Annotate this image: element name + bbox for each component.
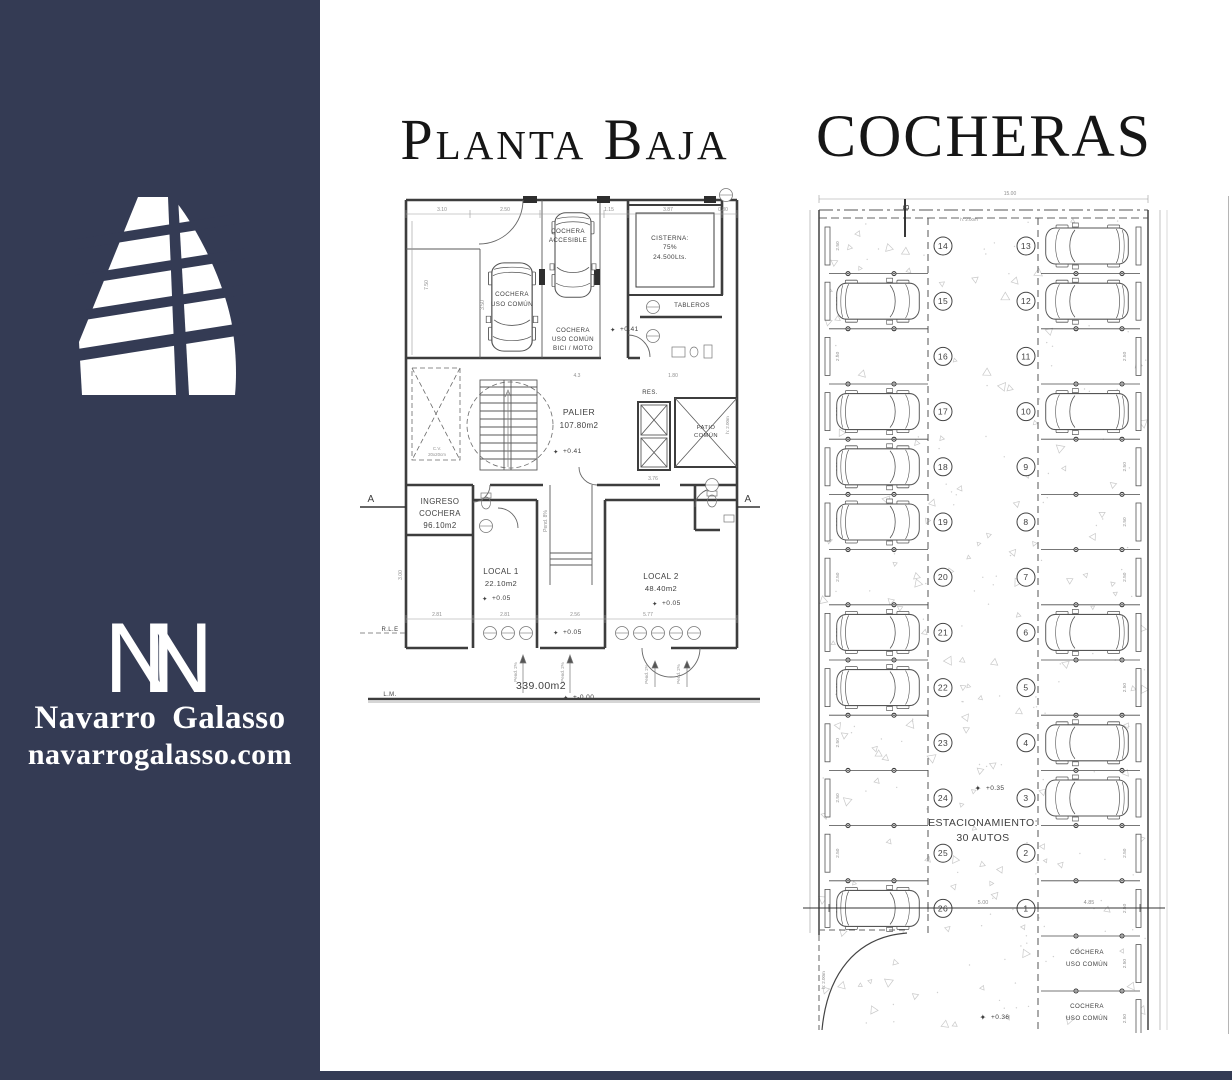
co-label: 2.50 bbox=[1122, 351, 1128, 361]
title-cocheras: COCHERAS bbox=[788, 102, 1180, 171]
co-label: 2.50 bbox=[835, 572, 841, 582]
parking-spot-number: 8 bbox=[1023, 517, 1028, 527]
car-top-view-icon bbox=[1046, 278, 1129, 324]
dim: 3.76 bbox=[648, 476, 658, 482]
pb-cisterna-walls bbox=[628, 205, 737, 470]
title-planta-baja: Planta Baja bbox=[358, 106, 772, 173]
co-label: USO COMÚN bbox=[1066, 961, 1108, 968]
level-041: +0.41 bbox=[563, 448, 582, 455]
planta-baja-plan: COCHERA ACCESIBLE COCHERA USO COMÚN CIST… bbox=[360, 185, 760, 760]
co-label: h: 2.00m bbox=[821, 971, 826, 989]
cocheras-plan: 15.00Bh: 2.00m2.502.502.502.502.502.502.… bbox=[795, 185, 1175, 1033]
co-label: +0.35 bbox=[986, 785, 1004, 792]
label-cochera-bici: BICI / MOTO bbox=[553, 345, 593, 352]
label-cisterna: 24.500Lts. bbox=[653, 254, 687, 261]
co-label: 2.50 bbox=[1122, 959, 1128, 969]
label-local-2: LOCAL 2 bbox=[643, 572, 679, 581]
label-pend-8: Pend. 8% bbox=[543, 510, 549, 532]
car-top-view-icon bbox=[837, 444, 920, 490]
level-mark-icon: ✦ bbox=[482, 595, 488, 603]
co-label: COCHERA bbox=[1070, 949, 1104, 956]
level-mark-icon: ✦ bbox=[553, 448, 559, 456]
dim: 4.3 bbox=[574, 373, 581, 379]
co-label: 2.50 bbox=[835, 738, 841, 748]
parking-spot-number: 15 bbox=[938, 296, 948, 306]
parking-spot-number: 23 bbox=[938, 738, 948, 748]
co-label: 2.50 bbox=[1122, 683, 1128, 693]
label-lm: L.M. bbox=[383, 692, 396, 698]
parking-spot-number: 5 bbox=[1023, 683, 1028, 693]
label-pend-2: Pend. 2% bbox=[513, 662, 518, 682]
dim: 2.56 bbox=[570, 612, 580, 618]
level-005: +0.05 bbox=[492, 595, 511, 602]
parking-spot-number: 16 bbox=[938, 351, 948, 361]
co-label: 2.50 bbox=[835, 241, 841, 251]
label-cv: C.V. bbox=[433, 446, 441, 451]
dim: 3.87 bbox=[663, 207, 673, 213]
dim: 1.80 bbox=[668, 373, 678, 379]
parking-spot-number: 22 bbox=[938, 683, 948, 693]
label-local-2-area: 48.40m2 bbox=[645, 584, 677, 593]
parking-spot-number: 12 bbox=[1021, 296, 1031, 306]
label-local-1: LOCAL 1 bbox=[483, 567, 519, 576]
level-000: +-0.00 bbox=[573, 694, 594, 701]
flyer-page: N N Navarro Galasso navarrogalasso.com P… bbox=[0, 0, 1232, 1080]
right-edge-dim-line bbox=[1228, 196, 1229, 1034]
car-top-view-icon bbox=[550, 213, 596, 297]
co-label: +0.36 bbox=[991, 1014, 1009, 1021]
car-top-view-icon bbox=[837, 665, 920, 711]
label-pend-2: Pend. 2% bbox=[676, 664, 681, 684]
car-top-view-icon bbox=[1046, 389, 1129, 435]
dim: 0.80 bbox=[718, 207, 728, 213]
level-041: +0.41 bbox=[620, 326, 639, 333]
label-ingreso-area: 96.10m2 bbox=[423, 521, 456, 530]
parking-spot-number: 9 bbox=[1023, 462, 1028, 472]
label-ingreso: INGRESO bbox=[421, 497, 460, 506]
parking-spot-number: 21 bbox=[938, 627, 948, 637]
co-label: 2.50 bbox=[835, 351, 841, 361]
car-top-view-icon bbox=[837, 609, 920, 655]
label-cochera-uso-comun: COCHERA bbox=[495, 291, 529, 298]
brand-website: navarrogalasso.com bbox=[0, 738, 320, 772]
parking-spot-number: 6 bbox=[1023, 627, 1028, 637]
label-h200: h: 2.00m bbox=[725, 416, 730, 434]
co-label: 4.85 bbox=[1084, 900, 1095, 906]
co-label: 2.50 bbox=[1122, 462, 1128, 472]
label-res: RES. bbox=[642, 390, 658, 396]
co-label: B bbox=[902, 204, 911, 210]
co-label: 15.00 bbox=[1004, 191, 1017, 197]
parking-spot-number: 11 bbox=[1021, 351, 1031, 361]
level-005: +0.05 bbox=[662, 600, 681, 607]
label-palier: PALIER bbox=[563, 407, 595, 417]
car-top-view-icon bbox=[1046, 720, 1129, 766]
dim: 2.50 bbox=[500, 207, 510, 213]
section-marker-a-right: A bbox=[744, 494, 751, 505]
dim: 3.10 bbox=[437, 207, 447, 213]
co-label: ✦ bbox=[974, 784, 981, 793]
co-label: COCHERA bbox=[1070, 1003, 1104, 1010]
label-palier-area: 107.80m2 bbox=[560, 421, 599, 430]
parking-spot-number: 17 bbox=[938, 407, 948, 417]
co-label: ESTACIONAMIENTO: bbox=[928, 817, 1038, 829]
co-label: 2.50 bbox=[1122, 848, 1128, 858]
parking-spot-number: 2 bbox=[1023, 848, 1028, 858]
co-label: 30 AUTOS bbox=[956, 832, 1009, 844]
dim: 5.77 bbox=[643, 612, 653, 618]
label-area-total: 339.00m2 bbox=[516, 680, 566, 692]
parking-spot-number: 3 bbox=[1023, 793, 1028, 803]
label-cochera-accesible: COCHERA bbox=[551, 228, 585, 235]
label-pend-2: Pend. 2% bbox=[560, 662, 565, 682]
monogram-n2: N bbox=[142, 602, 214, 700]
label-rle: R.L.E bbox=[381, 627, 398, 633]
label-cisterna: CISTERNA: bbox=[651, 235, 689, 242]
parking-spot-number: 19 bbox=[938, 517, 948, 527]
parking-spot-number: 10 bbox=[1021, 407, 1031, 417]
building-logo bbox=[75, 190, 245, 400]
parking-spot-number: 18 bbox=[938, 462, 948, 472]
level-mark-icon: ✦ bbox=[563, 694, 569, 702]
section-marker-a-left: A bbox=[367, 494, 374, 505]
label-cochera-accesible: ACCESIBLE bbox=[549, 237, 587, 244]
parking-spot-number: 4 bbox=[1023, 738, 1028, 748]
car-top-view-icon bbox=[837, 499, 920, 545]
label-patio-comun: PATIO bbox=[697, 425, 716, 431]
co-label: h: 2.00m bbox=[960, 217, 978, 222]
co-label: 2.50 bbox=[1122, 1014, 1128, 1024]
label-cochera-bici: COCHERA bbox=[556, 327, 590, 334]
parking-spot-number: 14 bbox=[938, 241, 948, 251]
car-top-view-icon bbox=[1046, 609, 1129, 655]
dim: 3.50 bbox=[480, 300, 486, 310]
level-mark-icon: ✦ bbox=[610, 326, 616, 334]
parking-spot-number: 7 bbox=[1023, 572, 1028, 582]
parking-spot-number: 20 bbox=[938, 572, 948, 582]
co-label: 2.50 bbox=[1122, 517, 1128, 527]
label-ingreso: COCHERA bbox=[419, 509, 461, 518]
label-tableros: TABLEROS bbox=[674, 302, 710, 309]
car-top-view-icon bbox=[837, 389, 920, 435]
co-label: 2.50 bbox=[1122, 572, 1128, 582]
dim: 7.50 bbox=[424, 280, 430, 290]
label-cochera-bici: USO COMÚN bbox=[552, 336, 594, 343]
sidebar: N N Navarro Galasso navarrogalasso.com bbox=[0, 0, 320, 1080]
car-top-view-icon bbox=[837, 278, 920, 324]
level-005: +0.05 bbox=[563, 629, 582, 636]
nn-monogram-logo: N N bbox=[0, 595, 320, 700]
level-mark-icon: ✦ bbox=[553, 629, 559, 637]
car-top-view-icon bbox=[1046, 775, 1129, 821]
label-local-1-area: 22.10m2 bbox=[485, 579, 517, 588]
label-cv: 20x20cm bbox=[428, 452, 446, 457]
parking-spot-number: 24 bbox=[938, 793, 948, 803]
dim: 2.81 bbox=[432, 612, 442, 618]
car-top-view-icon bbox=[1046, 223, 1129, 269]
bottom-accent-bar bbox=[0, 1071, 1232, 1080]
brand-name: Navarro Galasso bbox=[0, 700, 320, 737]
label-patio-comun: COMÚN bbox=[694, 432, 718, 439]
dim: 2.81 bbox=[500, 612, 510, 618]
co-label: 2.50 bbox=[835, 848, 841, 858]
co-label: USO COMÚN bbox=[1066, 1015, 1108, 1022]
co-label: ✦ bbox=[979, 1013, 986, 1022]
co-label: 2.50 bbox=[835, 793, 841, 803]
label-cochera-uso-comun: USO COMÚN bbox=[491, 301, 533, 308]
level-mark-icon: ✦ bbox=[652, 600, 658, 608]
label-pend-2: Pend. 2% bbox=[644, 664, 649, 684]
dim: 1.15 bbox=[604, 207, 614, 213]
parking-spot-number: 13 bbox=[1021, 241, 1031, 251]
co-label: 5.00 bbox=[978, 900, 989, 906]
dim: 3.00 bbox=[398, 570, 404, 580]
parking-spot-number: 25 bbox=[938, 848, 948, 858]
label-cisterna: 75% bbox=[663, 244, 677, 251]
